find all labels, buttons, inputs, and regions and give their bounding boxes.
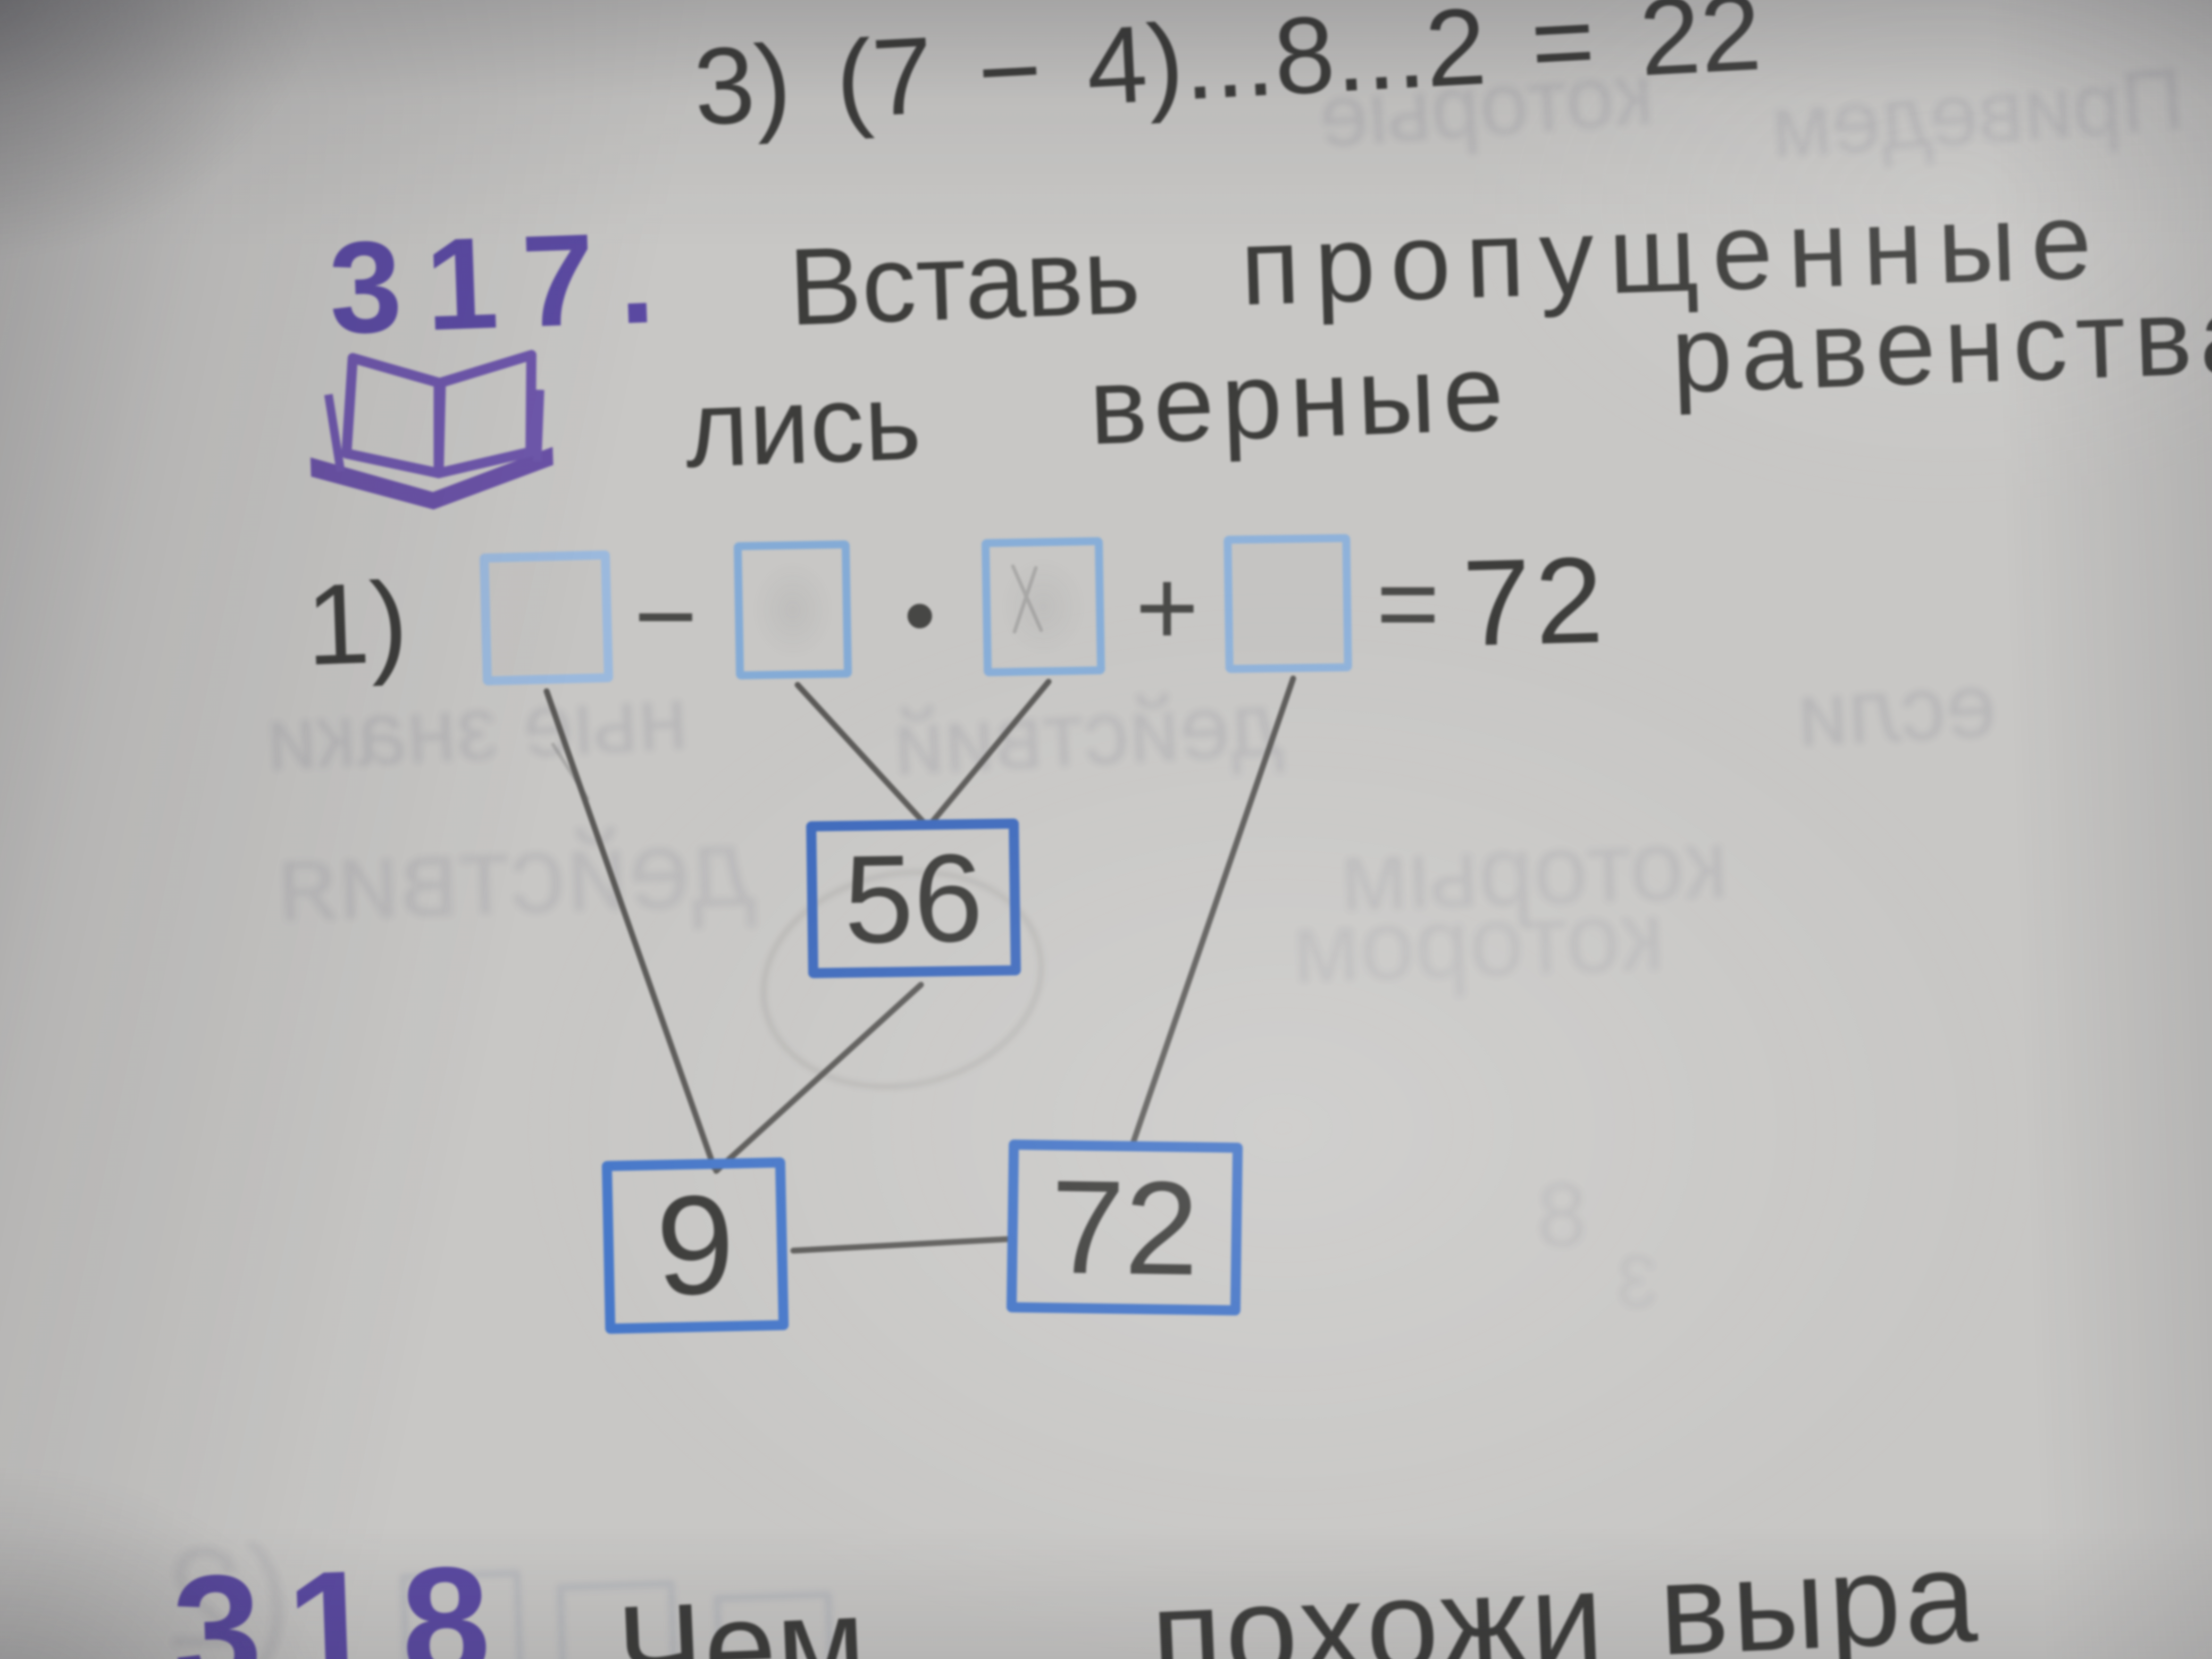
connector-line bbox=[716, 985, 921, 1171]
answer-box-2 bbox=[734, 540, 852, 680]
connector-line bbox=[1132, 678, 1293, 1147]
problem-number-318: 318 bbox=[170, 1541, 518, 1659]
node-box-56: 56 bbox=[806, 818, 1021, 978]
connector-lines bbox=[0, 0, 2212, 1659]
node-value: 72 bbox=[1050, 1160, 1200, 1295]
answer-box-4 bbox=[1224, 534, 1352, 673]
plus-operator: + bbox=[1135, 553, 1199, 662]
connector-line bbox=[798, 685, 926, 825]
connector-line bbox=[547, 691, 714, 1168]
connector-line bbox=[929, 682, 1049, 825]
equals-sign: = bbox=[1376, 549, 1440, 658]
equation-item-label: 1) bbox=[304, 564, 410, 682]
connector-line bbox=[793, 1239, 1011, 1251]
task318-word-chem: Чем bbox=[614, 1577, 868, 1659]
page-content: которые Приведем ные знаки действий если… bbox=[0, 0, 2212, 1659]
equation-result: 72 bbox=[1461, 539, 1609, 665]
task318-word-pohozhi: похожи bbox=[1149, 1552, 1609, 1659]
answer-box-3 bbox=[982, 537, 1105, 676]
node-value: 56 bbox=[843, 835, 984, 962]
node-box-9: 9 bbox=[602, 1157, 789, 1334]
task318-word-vyra: выра bbox=[1656, 1531, 1982, 1659]
minus-operator: − bbox=[634, 562, 698, 671]
multiply-dot-operator: • bbox=[904, 570, 936, 660]
node-value: 9 bbox=[655, 1174, 736, 1317]
node-box-72: 72 bbox=[1007, 1139, 1243, 1316]
answer-box-1 bbox=[480, 550, 613, 685]
textbook-page-photo: которые Приведем ные знаки действий если… bbox=[0, 0, 2212, 1659]
